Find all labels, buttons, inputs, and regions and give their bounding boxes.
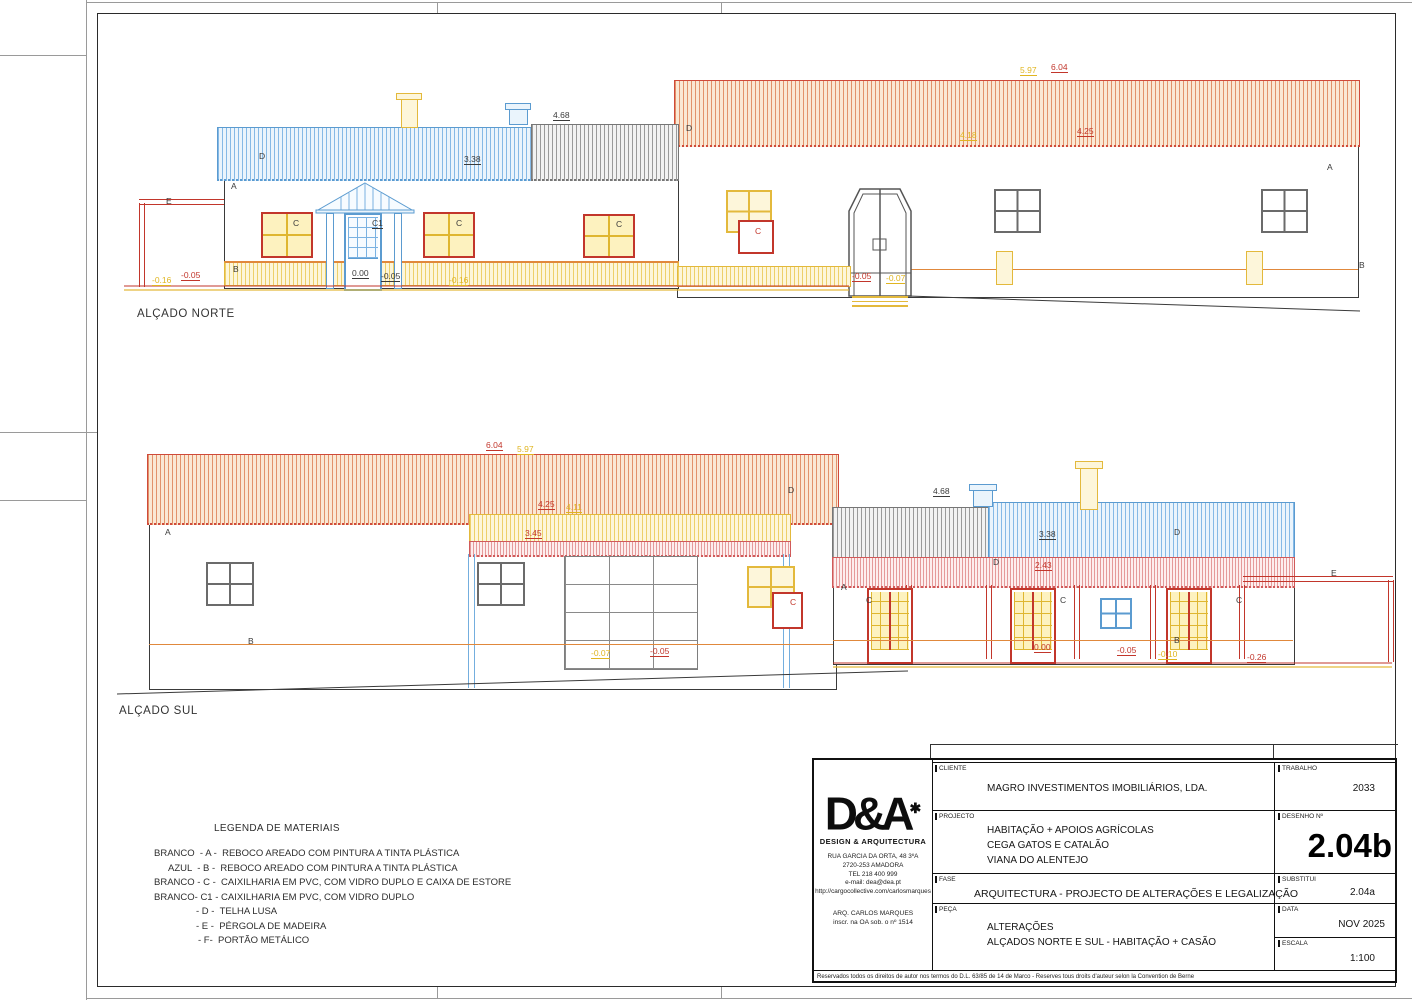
trabalho-cell: TRABALHO 2033 <box>1274 762 1397 810</box>
data-cell: DATA NOV 2025 <box>1274 903 1397 937</box>
escala-value: 1:100 <box>1350 953 1375 964</box>
address-line: RUA GARCIA DA ORTA, 48 3ºA <box>814 853 932 862</box>
logo-dot-icon: ✱ <box>909 800 921 816</box>
fase-cell: FASE ARQUITECTURA - PROJECTO DE ALTERAÇÕ… <box>932 873 1274 903</box>
projecto-cell: PROJECTO HABITAÇÃO + APOIOS AGRÍCOLASCEG… <box>932 810 1274 873</box>
escala-label: ESCALA <box>1278 940 1308 947</box>
trabalho-value: 2033 <box>1353 783 1375 794</box>
legend-title: LEGENDA DE MATERIAIS <box>214 823 340 834</box>
south-elevation-title: ALÇADO SUL <box>119 705 198 717</box>
legend-item: BRANCO - C - CAIXILHARIA EM PVC, COM VID… <box>154 876 511 891</box>
substitui-label: SUBSTITUI <box>1278 876 1316 883</box>
legend-item: - E - PÉRGOLA DE MADEIRA <box>196 920 511 935</box>
architect-line: inscr. na OA sob. o nº 1514 <box>814 918 932 927</box>
address-line: e-mail: dea@dea.pt <box>814 879 932 888</box>
copyright-strip: Reservados todos os direitos de autor no… <box>814 970 1395 981</box>
drawing-sheet: ALÇADO NORTE <box>0 0 1414 1000</box>
desenho-value: 2.04b <box>1308 827 1392 865</box>
title-block: D&A✱ DESIGN & ARQUITECTURA RUA GARCIA DA… <box>812 758 1397 983</box>
address-line: http://cargocollective.com/carlosmarques <box>814 888 932 897</box>
architect-line: ARQ. CARLOS MARQUES <box>814 909 932 918</box>
projecto-line: HABITAÇÃO + APOIOS AGRÍCOLAS <box>987 823 1154 838</box>
trabalho-label: TRABALHO <box>1278 765 1317 772</box>
legend-list: BRANCO - A - REBOCO AREADO COM PINTURA A… <box>154 847 511 949</box>
peca-value: ALTERAÇÕESALÇADOS NORTE E SUL - HABITAÇÃ… <box>987 920 1216 950</box>
projecto-line: CEGA GATOS E CATALÃO <box>987 838 1154 853</box>
cliente-cell: CLIENTE MAGRO INVESTIMENTOS IMOBILIÁRIOS… <box>932 762 1274 810</box>
architect-info: ARQ. CARLOS MARQUESinscr. na OA sob. o n… <box>814 909 932 927</box>
company-logo: D&A✱ <box>814 786 932 835</box>
substitui-cell: SUBSTITUI 2.04a <box>1274 873 1397 903</box>
fase-value: ARQUITECTURA - PROJECTO DE ALTERAÇÕES E … <box>974 888 1298 900</box>
peca-line: ALTERAÇÕES <box>987 920 1216 935</box>
data-value: NOV 2025 <box>1338 919 1385 930</box>
peca-line: ALÇADOS NORTE E SUL - HABITAÇÃO + CASÃO <box>987 935 1216 950</box>
fase-label: FASE <box>935 876 956 883</box>
legend-item: BRANCO - A - REBOCO AREADO COM PINTURA A… <box>154 847 511 862</box>
desenho-cell: DESENHO Nº 2.04b <box>1274 810 1397 873</box>
peca-label: PEÇA <box>935 906 957 913</box>
escala-cell: ESCALA 1:100 <box>1274 937 1397 970</box>
company-address: RUA GARCIA DA ORTA, 48 3ºA2720-253 AMADO… <box>814 853 932 896</box>
legend-item: BRANCO- C1 - CAIXILHARIA EM PVC, COM VID… <box>154 891 511 906</box>
logo-cell: D&A✱ DESIGN & ARQUITECTURA RUA GARCIA DA… <box>814 760 933 970</box>
projecto-line: VIANA DO ALENTEJO <box>987 853 1154 868</box>
legend-item: - D - TELHA LUSA <box>196 905 511 920</box>
cliente-value: MAGRO INVESTIMENTOS IMOBILIÁRIOS, LDA. <box>987 783 1207 794</box>
titleblock-upper-strip <box>930 744 1398 759</box>
projecto-value: HABITAÇÃO + APOIOS AGRÍCOLASCEGA GATOS E… <box>987 823 1154 868</box>
copyright-text: Reservados todos os direitos de autor no… <box>817 974 1194 980</box>
address-line: TEL 218 400 999 <box>814 871 932 880</box>
address-line: 2720-253 AMADORA <box>814 862 932 871</box>
logo-subtitle: DESIGN & ARQUITECTURA <box>814 837 932 846</box>
legend-item: AZUL - B - REBOCO AREADO COM PINTURA A T… <box>168 862 511 877</box>
substitui-value: 2.04a <box>1350 887 1375 898</box>
desenho-label: DESENHO Nº <box>1278 813 1323 820</box>
peca-cell: PEÇA ALTERAÇÕESALÇADOS NORTE E SUL - HAB… <box>932 903 1274 970</box>
strip-divider <box>1273 745 1274 759</box>
cliente-label: CLIENTE <box>935 765 966 772</box>
legend-item: - F- PORTÃO METÁLICO <box>198 934 511 949</box>
data-label: DATA <box>1278 906 1298 913</box>
logo-text: D&A <box>825 787 910 839</box>
projecto-label: PROJECTO <box>935 813 974 820</box>
